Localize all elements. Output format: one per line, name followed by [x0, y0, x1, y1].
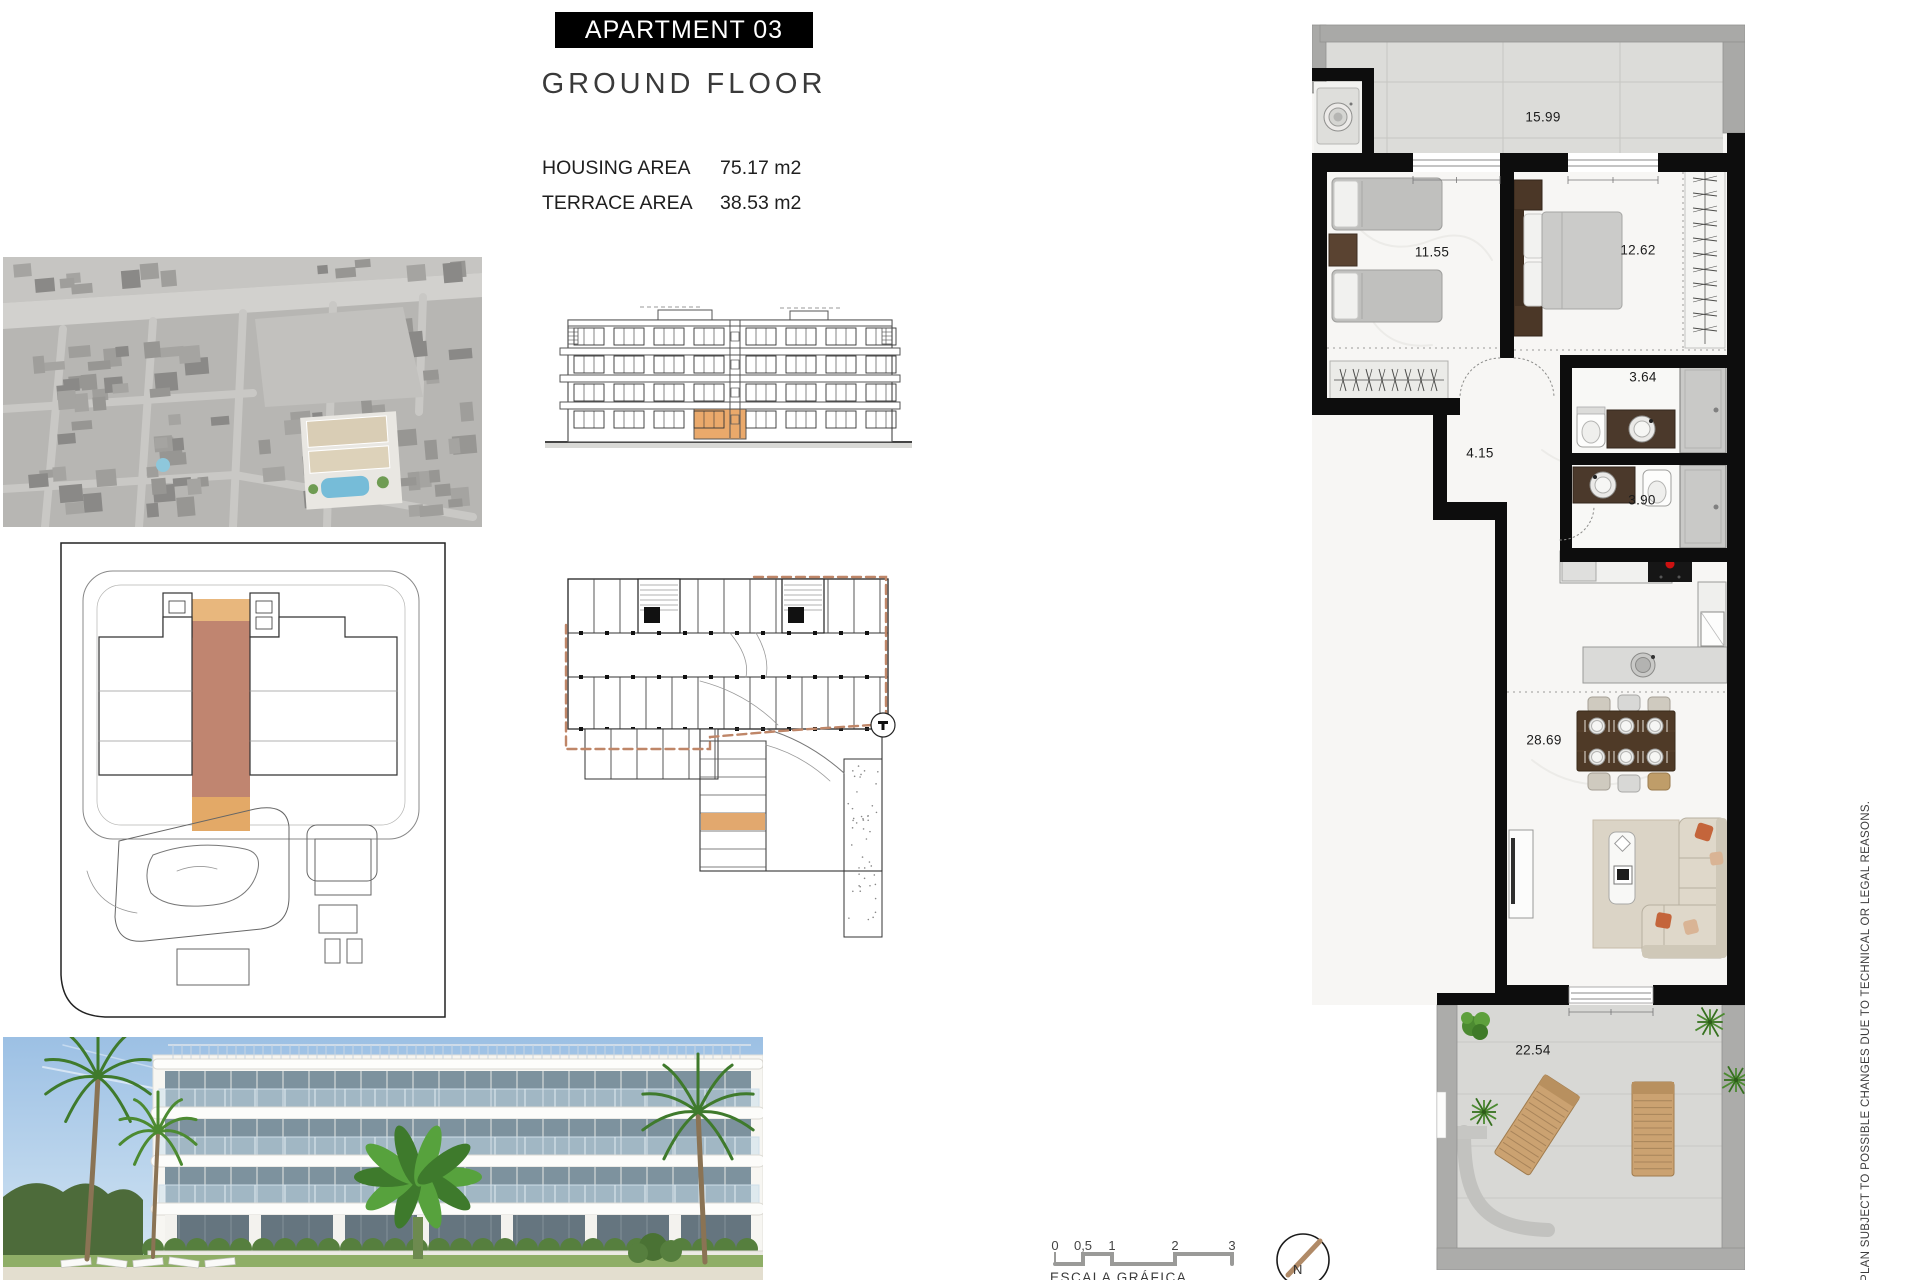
floor-subtitle: GROUND FLOOR [524, 68, 844, 101]
housing-area-label: HOUSING AREA [542, 157, 720, 180]
scale-caption: ESCALA GRÁFICA [1050, 1270, 1187, 1280]
room-label-bathroom-1: 3.64 [1629, 370, 1656, 385]
scale-tick-3: 3 [1228, 1238, 1235, 1253]
plan-sheet: APARTMENT 03 GROUND FLOOR HOUSING AREA75… [0, 0, 1920, 1280]
room-label-hallway: 4.15 [1466, 446, 1493, 461]
apartment-floor-plan: 15.99 11.55 12.62 3.64 4.15 3.90 28.69 2… [1312, 20, 1745, 1270]
terrace-area-value: 38.53 m2 [720, 192, 801, 214]
terrace-area-label: TERRACE AREA [542, 192, 720, 215]
north-compass-icon [1275, 1230, 1335, 1280]
housing-area-row: HOUSING AREA75.17 m2 [542, 157, 862, 180]
north-label: N [1293, 1262, 1302, 1277]
scale-tick-1: 1 [1108, 1238, 1115, 1253]
room-label-bedroom-1: 11.55 [1415, 245, 1449, 260]
floor-plan-graphic [1312, 20, 1745, 1270]
legal-disclaimer: PLAN SUBJECT TO POSSIBLE CHANGES DUE TO … [1860, 802, 1876, 1280]
site-plan-drawing [57, 541, 449, 1021]
room-label-terrace-bottom: 22.54 [1515, 1043, 1550, 1058]
room-label-bedroom-2: 12.62 [1620, 243, 1655, 258]
satellite-photo [3, 257, 482, 527]
key-plan-drawing [550, 573, 930, 948]
room-label-bathroom-2: 3.90 [1628, 493, 1655, 508]
scale-tick-2: 2 [1171, 1238, 1178, 1253]
scale-tick-05: 0,5 [1074, 1238, 1092, 1253]
building-rendering [3, 1037, 763, 1280]
page-title: APARTMENT 03 [555, 12, 813, 48]
scale-tick-0: 0 [1051, 1238, 1058, 1253]
housing-area-value: 75.17 m2 [720, 157, 801, 179]
room-label-terrace-top: 15.99 [1525, 110, 1560, 125]
terrace-area-row: TERRACE AREA38.53 m2 [542, 192, 862, 215]
scale-bar: 0 0,5 1 2 3 ESCALA GRÁFICA [1048, 1238, 1258, 1280]
room-label-living: 28.69 [1526, 733, 1561, 748]
elevation-drawing [540, 298, 920, 458]
